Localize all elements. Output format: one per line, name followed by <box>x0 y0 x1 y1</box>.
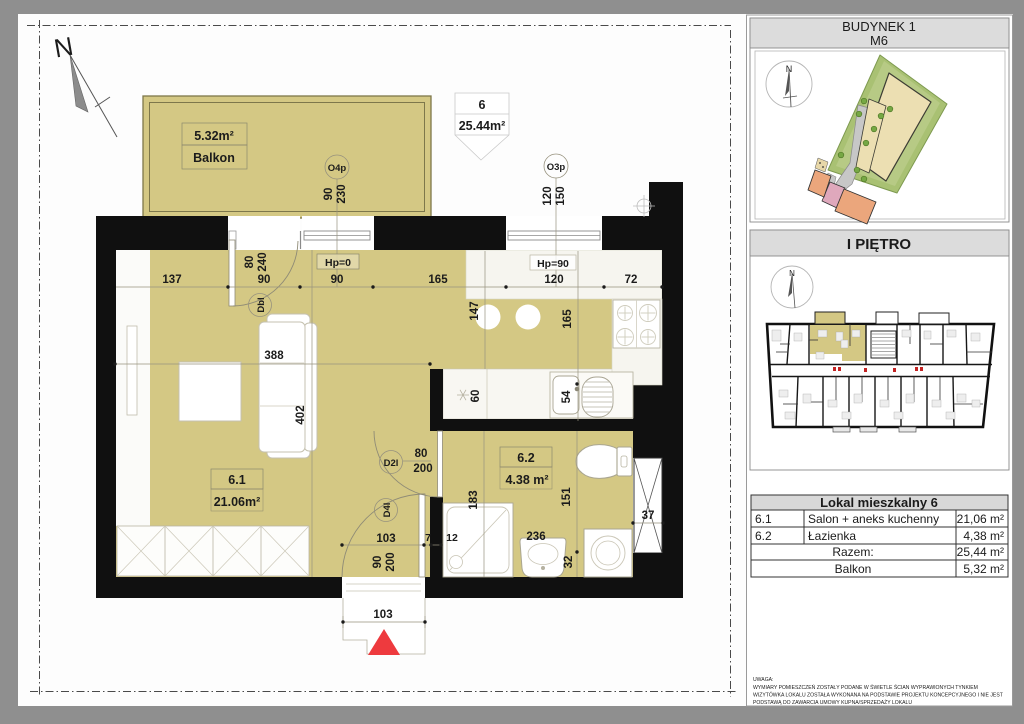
svg-text:5,32 m²: 5,32 m² <box>963 562 1004 576</box>
svg-text:6.2: 6.2 <box>517 451 534 465</box>
svg-text:Salon + aneks kuchenny: Salon + aneks kuchenny <box>808 512 939 526</box>
svg-text:7: 7 <box>425 532 431 544</box>
svg-text:165: 165 <box>562 309 574 329</box>
svg-text:Balkon: Balkon <box>193 151 235 165</box>
svg-text:Hp=0: Hp=0 <box>325 257 351 269</box>
svg-text:I PIĘTRO: I PIĘTRO <box>847 236 912 253</box>
svg-text:25,44 m²: 25,44 m² <box>957 545 1004 559</box>
svg-text:90: 90 <box>372 556 384 569</box>
svg-text:137: 137 <box>162 274 181 286</box>
svg-text:M6: M6 <box>870 33 888 48</box>
svg-text:37: 37 <box>642 510 655 522</box>
svg-text:Łazienka: Łazienka <box>808 529 856 543</box>
svg-text:120: 120 <box>544 274 563 286</box>
svg-text:183: 183 <box>468 490 480 509</box>
svg-text:21,06 m²: 21,06 m² <box>957 512 1004 526</box>
svg-text:103: 103 <box>373 609 392 621</box>
svg-text:BUDYNEK 1: BUDYNEK 1 <box>842 19 916 34</box>
svg-text:388: 388 <box>264 350 284 362</box>
svg-text:UWAGA:: UWAGA: <box>753 677 773 683</box>
svg-text:32: 32 <box>563 556 575 569</box>
svg-text:5.32m²: 5.32m² <box>194 129 234 143</box>
svg-text:6: 6 <box>479 98 486 112</box>
svg-text:200: 200 <box>413 463 432 475</box>
svg-text:72: 72 <box>625 274 638 286</box>
svg-text:12: 12 <box>446 532 458 544</box>
svg-text:90: 90 <box>258 274 271 286</box>
svg-text:402: 402 <box>295 405 307 424</box>
svg-text:90: 90 <box>323 188 335 201</box>
svg-text:151: 151 <box>561 487 573 507</box>
svg-text:150: 150 <box>555 186 567 205</box>
svg-text:80: 80 <box>415 448 428 460</box>
svg-text:PODSTAWĄ DO ZAWARCIA UMOWY KUP: PODSTAWĄ DO ZAWARCIA UMOWY KUPNA/SPRZEDA… <box>753 699 912 706</box>
svg-text:200: 200 <box>385 552 397 571</box>
svg-text:120: 120 <box>542 186 554 205</box>
svg-text:WYMIARY POMIESZCZEŃ ZOSTAŁY PO: WYMIARY POMIESZCZEŃ ZOSTAŁY PODANE W ŚWI… <box>753 683 978 691</box>
svg-text:D2l: D2l <box>384 458 399 469</box>
svg-text:Balkon: Balkon <box>835 562 872 576</box>
svg-text:147: 147 <box>469 301 481 320</box>
svg-text:21.06m²: 21.06m² <box>214 495 261 509</box>
svg-text:WIZYTÓWKA LOKALU ZOSTAŁA WYKON: WIZYTÓWKA LOKALU ZOSTAŁA WYKONANA NA POD… <box>753 692 1003 699</box>
svg-text:54: 54 <box>561 390 573 403</box>
svg-text:Lokal mieszkalny 6: Lokal mieszkalny 6 <box>820 495 938 510</box>
svg-text:90: 90 <box>331 274 344 286</box>
svg-text:165: 165 <box>428 274 448 286</box>
svg-text:103: 103 <box>376 533 395 545</box>
svg-text:D4l: D4l <box>382 503 393 518</box>
svg-text:4,38 m²: 4,38 m² <box>963 529 1004 543</box>
svg-text:4.38 m²: 4.38 m² <box>505 473 548 487</box>
svg-text:6.1: 6.1 <box>755 512 772 526</box>
svg-text:230: 230 <box>336 184 348 203</box>
svg-text:O4p: O4p <box>328 163 347 174</box>
svg-text:236: 236 <box>526 531 545 543</box>
svg-text:Dbl: Dbl <box>256 297 267 312</box>
svg-text:240: 240 <box>257 252 269 271</box>
svg-text:Hp=90: Hp=90 <box>537 258 569 270</box>
svg-text:80: 80 <box>244 256 256 269</box>
svg-text:Razem:: Razem: <box>832 545 873 559</box>
svg-text:6.1: 6.1 <box>228 473 245 487</box>
svg-text:60: 60 <box>470 390 482 403</box>
svg-text:25.44m²: 25.44m² <box>459 119 506 133</box>
svg-text:6.2: 6.2 <box>755 529 772 543</box>
svg-text:O3p: O3p <box>547 162 566 173</box>
